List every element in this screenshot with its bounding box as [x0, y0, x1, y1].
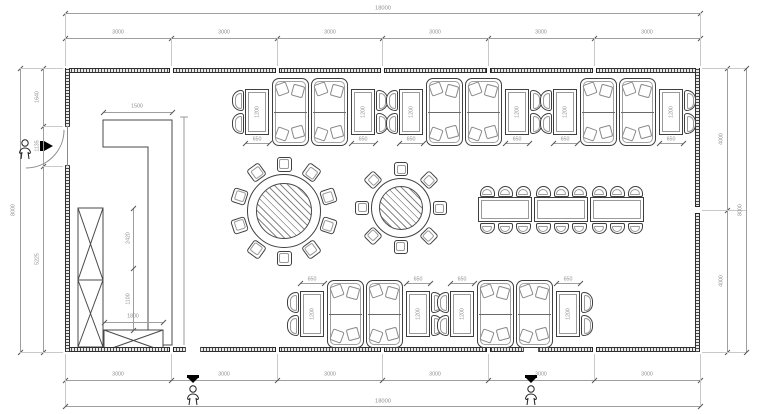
banquet-table — [590, 197, 644, 222]
dimension-label: 1100 — [125, 293, 130, 304]
dim-ext — [43, 352, 63, 353]
dim-line-right-total — [746, 68, 747, 352]
chair — [536, 186, 551, 197]
dimension-label: 650 — [359, 136, 368, 141]
booth-table-divider — [479, 314, 512, 315]
chair — [232, 113, 244, 134]
wall-mullion — [275, 68, 280, 73]
bar-counter — [103, 120, 172, 345]
dim-line-table — [300, 283, 324, 284]
wall-mullion — [169, 68, 174, 73]
person-icon — [16, 138, 34, 160]
dim-ext — [20, 68, 43, 69]
wall-mullion — [169, 347, 174, 352]
exit-marker-icon — [526, 378, 536, 383]
chair — [554, 186, 569, 197]
dimension-label: 650 — [561, 136, 570, 141]
dimension-label: 8000 — [737, 204, 742, 216]
chair — [287, 315, 299, 336]
chair — [516, 186, 531, 197]
chair — [480, 186, 495, 197]
dimension-label: 3000 — [324, 371, 336, 376]
dim-ext — [65, 38, 66, 66]
dim-ext — [65, 380, 66, 406]
dimension-label: 3000 — [641, 371, 653, 376]
booth-table-divider — [313, 112, 346, 113]
dim-line-table — [399, 143, 423, 144]
dim-ext — [700, 13, 701, 37]
chair — [277, 251, 292, 266]
booth-table-divider — [428, 112, 461, 113]
dim-ext — [702, 68, 746, 69]
door-opening-bottom-1 — [185, 347, 201, 352]
dimension-label: 1200 — [565, 308, 570, 320]
round-table-large-top — [256, 183, 312, 239]
booth-table-divider — [582, 112, 615, 113]
dimension-label: 4000 — [718, 275, 723, 287]
dim-line-left-total — [20, 68, 21, 352]
dim-line-table — [450, 283, 474, 284]
chair — [592, 186, 607, 197]
dim-ext — [488, 354, 489, 380]
dim-line-left-chain — [43, 68, 44, 352]
chair — [540, 90, 552, 111]
exit-marker-icon — [188, 378, 198, 383]
wall-mullion — [695, 206, 700, 214]
chair — [572, 186, 587, 197]
dim-ext — [43, 68, 63, 69]
dimension-label: 3000 — [429, 29, 441, 34]
chair — [277, 157, 292, 172]
dim-line-table — [406, 283, 430, 284]
booth-table-divider — [467, 112, 500, 113]
dim-ext — [277, 354, 278, 380]
booth-table-divider — [329, 314, 362, 315]
dim-line-table — [505, 143, 529, 144]
dim-ext — [382, 38, 383, 66]
door-leaf — [67, 126, 68, 166]
dimension-label: 1200 — [668, 106, 673, 118]
dim-ext — [65, 354, 66, 380]
dim-line-top-total — [65, 13, 700, 14]
dimension-label: 1135 — [34, 140, 39, 151]
dimension-label: 8000 — [10, 204, 15, 216]
dim-line-table — [553, 143, 577, 144]
dim-ext — [43, 126, 63, 127]
dim-ext — [700, 38, 701, 66]
person-icon — [522, 384, 540, 406]
entrance-arrow-icon — [40, 141, 43, 151]
chair — [287, 292, 299, 313]
dimension-label: 18000 — [375, 5, 391, 11]
dim-line-bottom-total — [65, 406, 700, 407]
wall-mullion — [380, 68, 385, 73]
dim-ext — [702, 352, 746, 353]
dimension-label: 1800 — [127, 313, 139, 318]
dimension-label: 1200 — [562, 106, 567, 118]
dim-ext — [20, 352, 43, 353]
dimension-label: 3000 — [429, 371, 441, 376]
dim-ext — [488, 38, 489, 66]
round-table-small-top — [379, 186, 423, 230]
dim-line-counter — [103, 112, 172, 113]
dimension-label: 1200 — [254, 106, 259, 118]
dim-ext — [700, 354, 701, 380]
dimension-label: 1200 — [514, 106, 519, 118]
dimension-label: 650 — [308, 276, 317, 281]
booth-table-divider — [368, 314, 401, 315]
dimension-label: 3000 — [535, 29, 547, 34]
dimension-label: 650 — [407, 136, 416, 141]
dim-line-cabinet-width — [104, 322, 163, 323]
dim-line-table — [556, 283, 580, 284]
dimension-label: 1640 — [34, 91, 39, 103]
entrance-arrow-icon — [44, 141, 53, 151]
wall-mullion — [486, 68, 491, 73]
dim-line-table — [245, 143, 269, 144]
dimension-label: 1200 — [309, 308, 314, 320]
wall-mullion — [592, 68, 597, 73]
chair — [433, 201, 447, 215]
dim-ext — [43, 166, 63, 167]
booth-table-divider — [621, 112, 654, 113]
wall-mullion — [592, 347, 597, 352]
dimension-label: 1200 — [360, 106, 365, 118]
dim-line-table — [351, 143, 375, 144]
chair — [232, 90, 244, 111]
dim-line-table — [659, 143, 683, 144]
dim-ext — [594, 38, 595, 66]
dim-ext — [594, 354, 595, 380]
wall-mullion — [275, 347, 280, 352]
dim-ext — [171, 38, 172, 66]
booth-table-divider — [274, 112, 307, 113]
dim-ext — [382, 354, 383, 380]
dim-ext — [277, 38, 278, 66]
chair — [394, 240, 408, 254]
chair — [498, 186, 513, 197]
dim-ext — [700, 380, 701, 406]
partition-line — [180, 117, 188, 345]
dimension-label: 3000 — [218, 29, 230, 34]
chair — [437, 292, 449, 313]
chair — [540, 113, 552, 134]
dim-ext — [171, 354, 172, 380]
dimension-label: 5225 — [34, 253, 39, 265]
dimension-label: 1200 — [459, 308, 464, 320]
dimension-label: 18000 — [375, 398, 391, 404]
dimension-label: 1500 — [131, 103, 143, 108]
chair — [386, 113, 398, 134]
dimension-label: 1200 — [408, 106, 413, 118]
chair — [628, 186, 643, 197]
dimension-label: 650 — [253, 136, 262, 141]
dimension-label: 650 — [564, 276, 573, 281]
dimension-label: 3000 — [112, 371, 124, 376]
banquet-table — [534, 197, 588, 222]
person-icon — [184, 384, 202, 406]
chair — [610, 186, 625, 197]
chair — [386, 90, 398, 111]
dimension-label: 650 — [667, 136, 676, 141]
dimension-label: 3000 — [218, 371, 230, 376]
dimension-label: 650 — [458, 276, 467, 281]
banquet-table — [478, 197, 532, 222]
dimension-label: 2420 — [125, 232, 130, 244]
dimension-label: 4000 — [718, 133, 723, 145]
wall-left — [65, 68, 70, 352]
chair — [355, 201, 369, 215]
chair — [437, 315, 449, 336]
dimension-label: 3000 — [112, 29, 124, 34]
dim-ext — [65, 13, 66, 37]
dimension-label: 650 — [513, 136, 522, 141]
dimension-label: 3000 — [324, 29, 336, 34]
dimension-label: 650 — [414, 276, 423, 281]
dimension-label: 3000 — [641, 29, 653, 34]
booth-table-divider — [518, 314, 551, 315]
floor-plan-canvas: 1800030003000300030003000300030003000300… — [0, 0, 772, 414]
dimension-label: 1200 — [415, 308, 420, 320]
chair — [394, 162, 408, 176]
